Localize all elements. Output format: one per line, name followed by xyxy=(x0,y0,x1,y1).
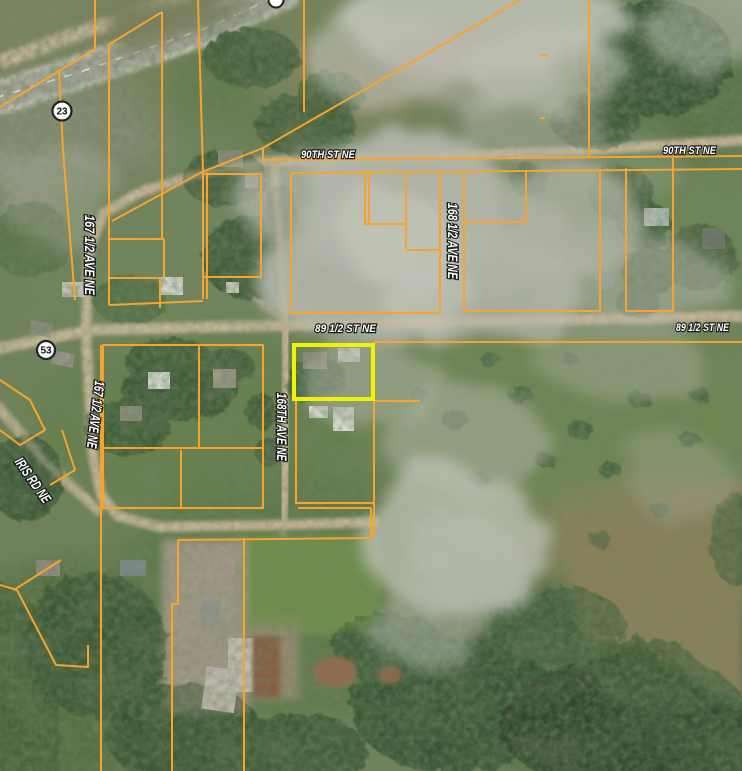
svg-text:90TH ST NE: 90TH ST NE xyxy=(301,149,355,161)
svg-text:168TH AVE NE: 168TH AVE NE xyxy=(274,393,290,461)
svg-text:89 1/2 ST NE: 89 1/2 ST NE xyxy=(676,322,729,334)
svg-text:53: 53 xyxy=(40,346,52,357)
svg-text:90TH ST NE: 90TH ST NE xyxy=(663,145,716,157)
svg-text:89 1/2 ST NE: 89 1/2 ST NE xyxy=(315,323,377,335)
svg-text:168 1/2 AVE NE: 168 1/2 AVE NE xyxy=(445,203,461,279)
svg-text:167 1/2 AVE NE: 167 1/2 AVE NE xyxy=(82,215,98,295)
svg-text:23: 23 xyxy=(56,107,68,118)
